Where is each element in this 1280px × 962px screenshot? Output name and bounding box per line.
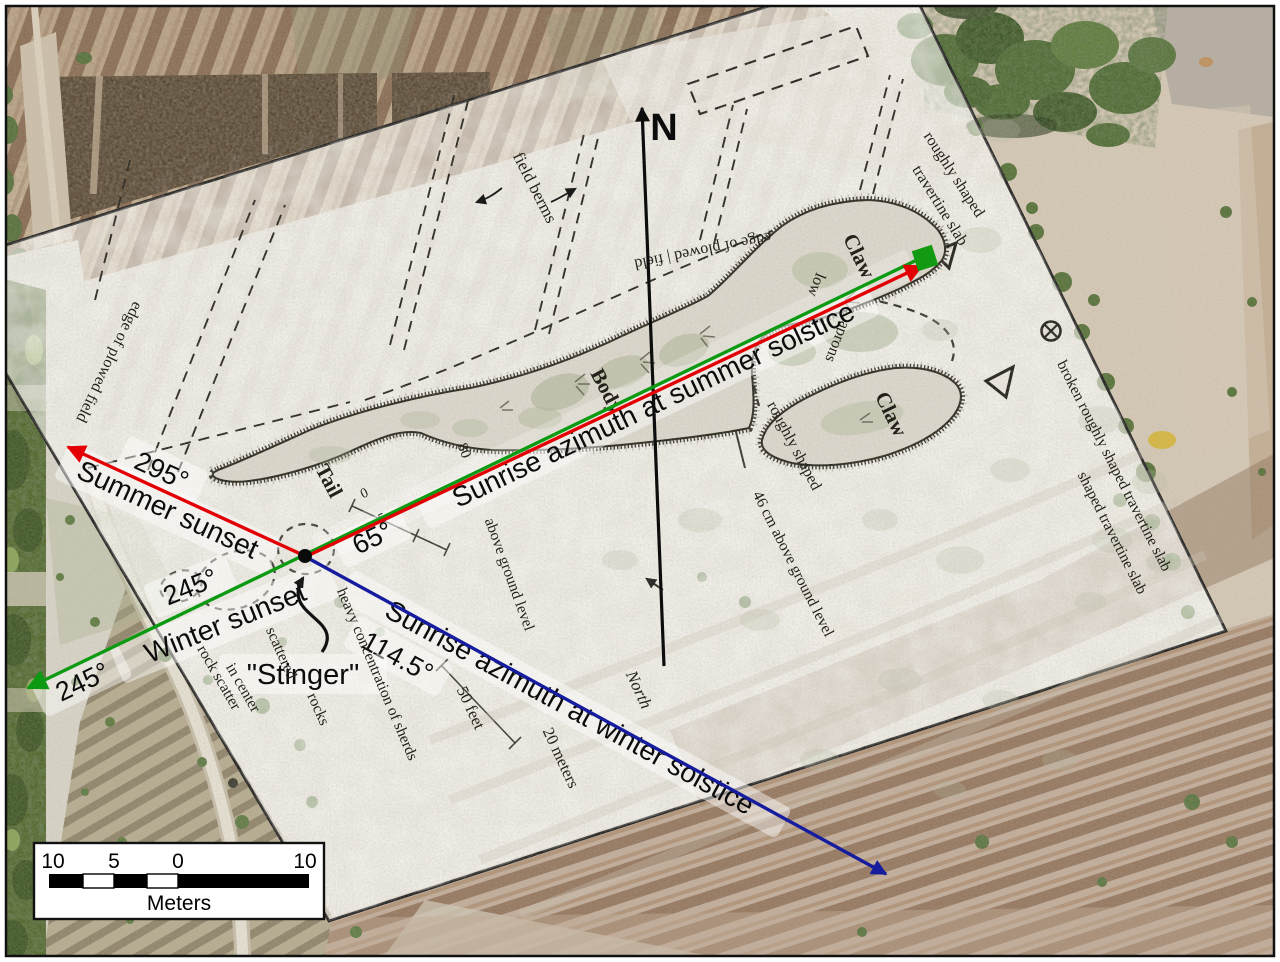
svg-text:5: 5 xyxy=(108,850,120,873)
svg-text:Meters: Meters xyxy=(147,892,211,915)
svg-text:10: 10 xyxy=(41,850,64,873)
svg-text:N: N xyxy=(650,107,677,149)
svg-text:0: 0 xyxy=(172,850,184,873)
svg-text:"Stinger": "Stinger" xyxy=(247,659,359,691)
svg-text:10: 10 xyxy=(293,850,316,873)
